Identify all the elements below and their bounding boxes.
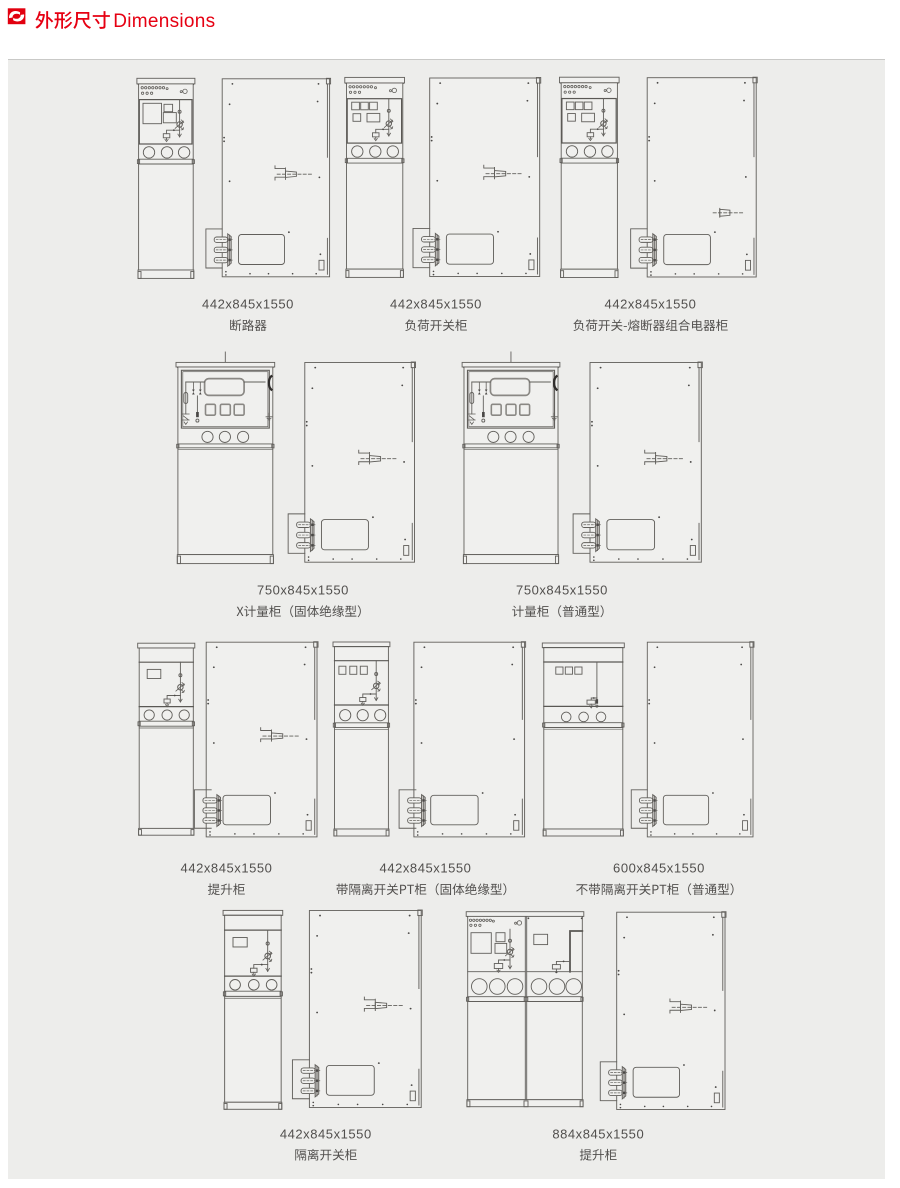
svg-text:600x845x1550: 600x845x1550 [613,861,705,876]
svg-text:442x845x1550: 442x845x1550 [202,297,294,312]
svg-text:442x845x1550: 442x845x1550 [181,861,273,876]
svg-text:Dimensions: Dimensions [113,11,215,32]
svg-text:750x845x1550: 750x845x1550 [257,583,349,598]
svg-text:442x845x1550: 442x845x1550 [380,861,472,876]
svg-text:442x845x1550: 442x845x1550 [390,297,482,312]
svg-text:442x845x1550: 442x845x1550 [280,1127,372,1142]
svg-text:884x845x1550: 884x845x1550 [552,1127,644,1142]
svg-text:750x845x1550: 750x845x1550 [516,583,608,598]
svg-text:442x845x1550: 442x845x1550 [605,297,697,312]
